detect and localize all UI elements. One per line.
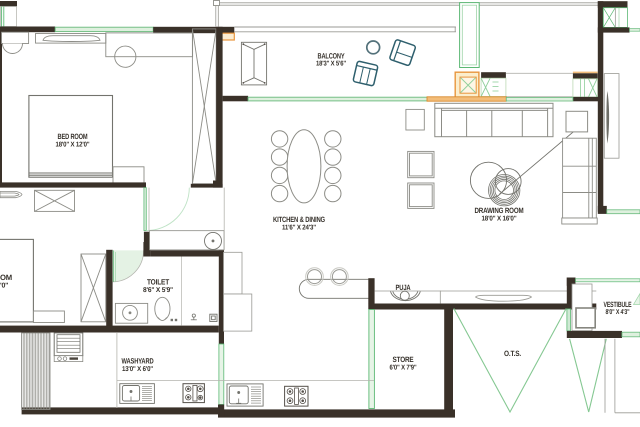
svg-text:O.T.S.: O.T.S. bbox=[504, 349, 521, 358]
svg-text:KITCHEN & DINING: KITCHEN & DINING bbox=[273, 215, 325, 224]
svg-text:18'0" X 16'0": 18'0" X 16'0" bbox=[482, 216, 517, 223]
svg-text:BED ROOM: BED ROOM bbox=[58, 132, 88, 141]
svg-text:WASHYARD: WASHYARD bbox=[122, 357, 154, 366]
svg-text:PUJA: PUJA bbox=[396, 283, 411, 292]
svg-text:8'6" X 5'9": 8'6" X 5'9" bbox=[143, 287, 173, 294]
svg-text:18'3" X 5'6": 18'3" X 5'6" bbox=[316, 60, 346, 67]
svg-text:STORE: STORE bbox=[393, 355, 414, 364]
svg-text:'0": '0" bbox=[0, 282, 8, 289]
svg-text:OM: OM bbox=[0, 273, 12, 282]
svg-text:BALCONY: BALCONY bbox=[318, 51, 345, 60]
svg-text:8'0" X 4'3": 8'0" X 4'3" bbox=[606, 309, 630, 316]
svg-text:DRAWING ROOM: DRAWING ROOM bbox=[475, 206, 524, 215]
svg-text:VESTIBULE: VESTIBULE bbox=[604, 300, 632, 309]
svg-text:TOILET: TOILET bbox=[147, 278, 169, 287]
svg-text:6'0" X 7'9": 6'0" X 7'9" bbox=[390, 365, 417, 372]
svg-text:18'0" X 12'0": 18'0" X 12'0" bbox=[56, 141, 90, 148]
svg-text:11'6" X 24'3": 11'6" X 24'3" bbox=[282, 225, 316, 232]
svg-text:13'0" X 6'0": 13'0" X 6'0" bbox=[122, 366, 153, 373]
